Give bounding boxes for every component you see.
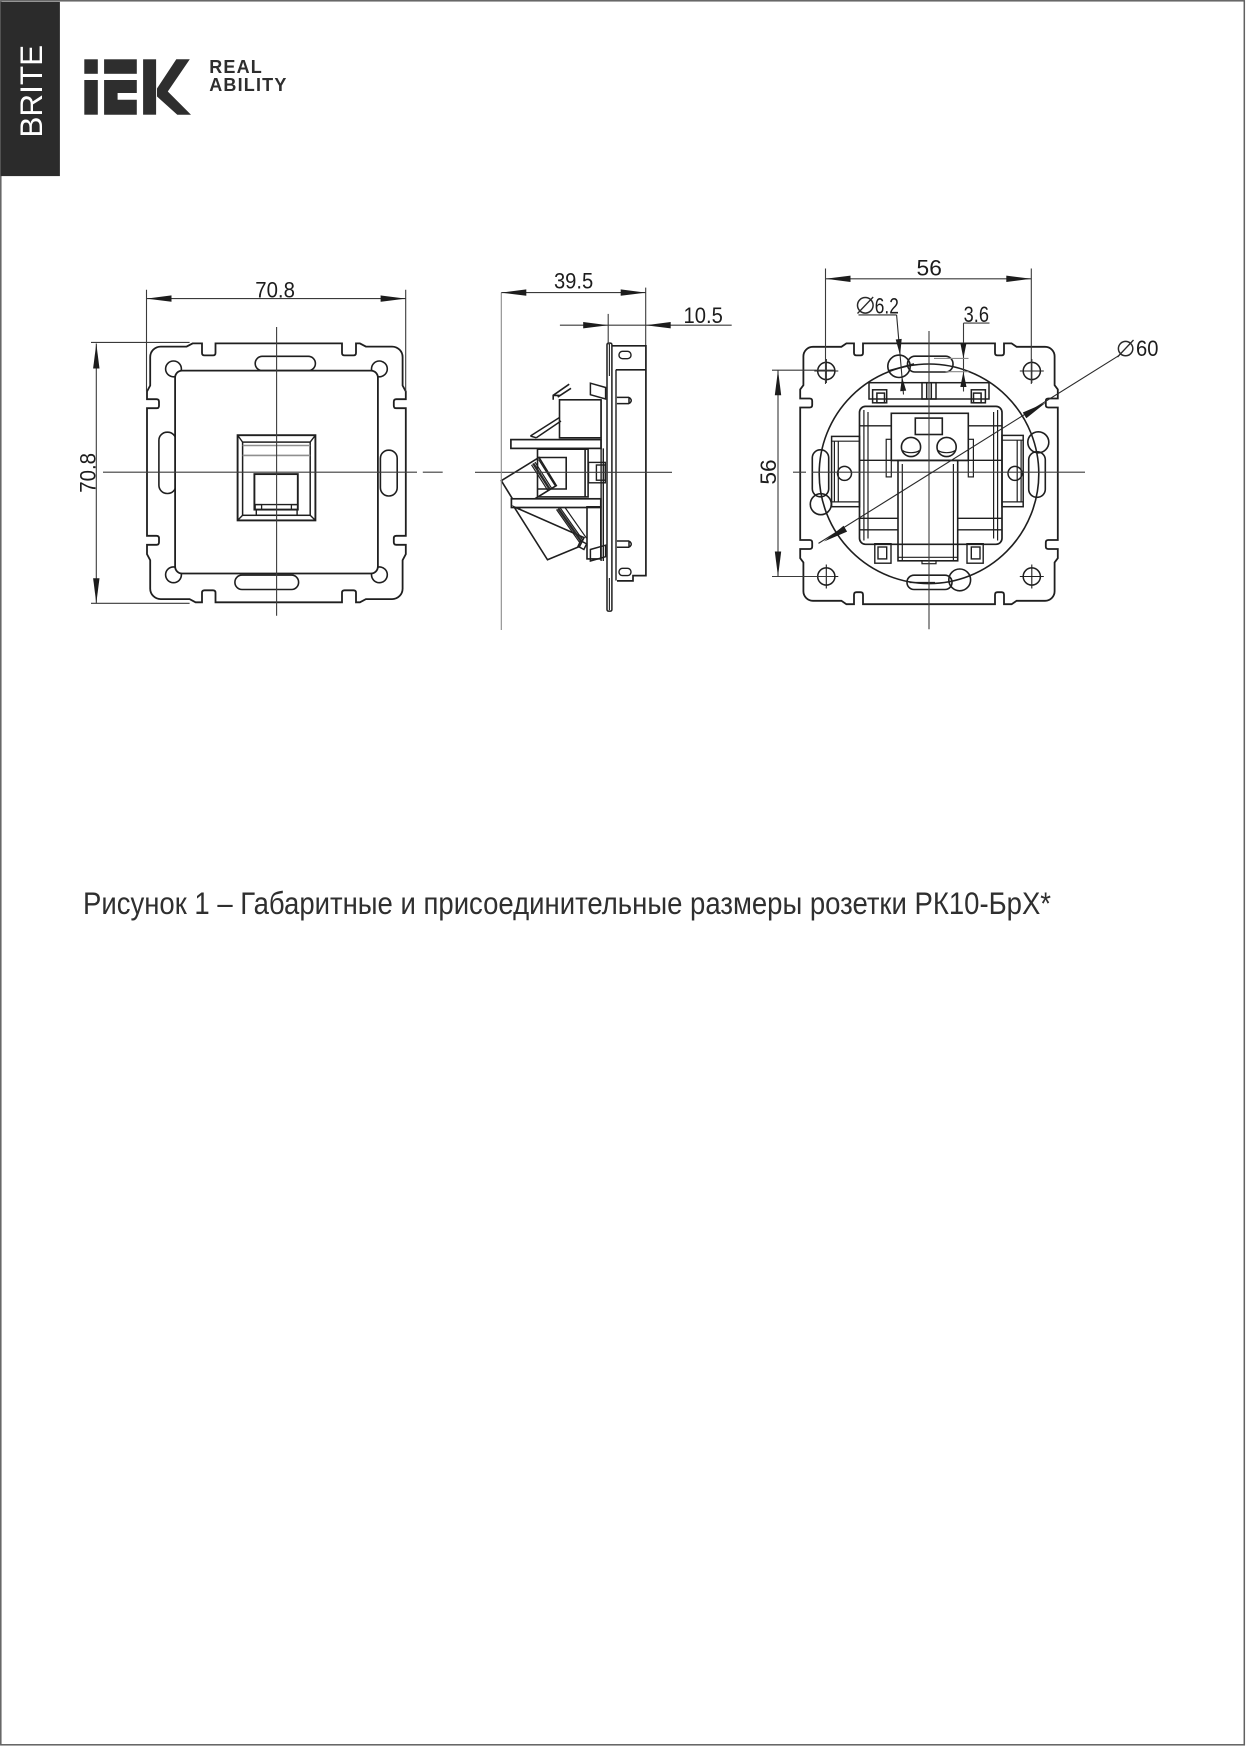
svg-text:10.5: 10.5 (684, 303, 723, 328)
svg-text:BRITE: BRITE (13, 45, 49, 138)
svg-text:6.2: 6.2 (875, 293, 899, 318)
svg-text:70.8: 70.8 (76, 453, 101, 493)
svg-text:56: 56 (917, 256, 942, 281)
svg-text:3.6: 3.6 (964, 302, 989, 327)
svg-text:39.5: 39.5 (554, 268, 593, 293)
svg-text:70.8: 70.8 (255, 277, 295, 302)
svg-text:56: 56 (756, 459, 781, 484)
svg-text:Рисунок 1 – Габаритные и присо: Рисунок 1 – Габаритные и присоединительн… (83, 885, 1051, 921)
svg-text:60: 60 (1136, 336, 1158, 361)
svg-text:ABILITY: ABILITY (209, 75, 287, 95)
svg-text:REAL: REAL (209, 57, 263, 77)
